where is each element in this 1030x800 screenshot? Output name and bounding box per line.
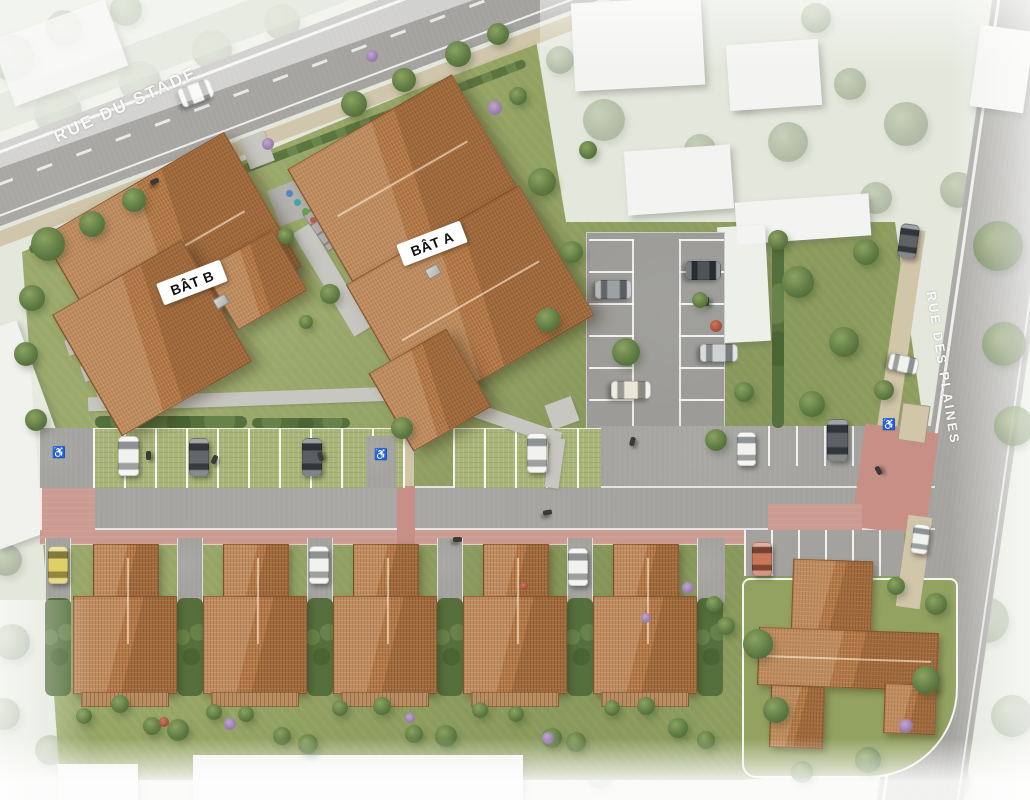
shrub-icon — [508, 706, 524, 722]
house-roof — [353, 544, 419, 600]
flowering-shrub-icon — [542, 732, 554, 744]
tree-icon — [79, 211, 105, 237]
tree-icon — [579, 141, 597, 159]
hedge — [567, 598, 593, 696]
context-building — [970, 25, 1030, 114]
car-icon — [118, 436, 139, 476]
flowering-shrub-icon — [262, 138, 274, 150]
utility-boxes — [897, 402, 930, 444]
driveway — [437, 538, 463, 602]
pedestrian-icon — [146, 451, 151, 460]
tree-icon — [509, 87, 527, 105]
roof-ridge — [517, 558, 519, 644]
accessible-parking-icon: ♿ — [882, 420, 896, 431]
house-roof — [463, 596, 567, 694]
flowering-shrub-icon — [520, 582, 528, 590]
house-roof — [203, 596, 307, 694]
tree-icon — [782, 266, 814, 298]
roof-ridge — [337, 140, 468, 217]
shrub-icon — [373, 697, 391, 715]
tree-icon — [668, 718, 688, 738]
hedge — [772, 230, 784, 428]
road-edge-line — [954, 0, 1030, 800]
tree-icon — [743, 629, 773, 659]
shrub-icon — [206, 704, 222, 720]
tree-icon — [25, 409, 47, 431]
accessible-parking-stall — [366, 436, 396, 488]
tree-icon — [391, 417, 413, 439]
tree-icon — [734, 382, 754, 402]
tree-icon — [528, 168, 556, 196]
shrub-icon — [405, 725, 423, 743]
tree-icon — [994, 406, 1030, 446]
tree-icon — [487, 23, 509, 45]
flowering-shrub-icon — [682, 582, 694, 594]
car-icon — [827, 419, 848, 461]
flowering-shrub-icon — [899, 719, 913, 733]
tree-icon — [278, 228, 294, 244]
driveway — [697, 538, 725, 602]
house-roof — [73, 596, 177, 694]
car-icon — [686, 261, 721, 280]
tree-icon — [706, 596, 722, 612]
tree-icon — [884, 102, 928, 146]
tree-icon — [874, 380, 894, 400]
tree-icon — [14, 342, 38, 366]
tree-icon — [925, 593, 947, 615]
flowering-shrub-icon — [159, 717, 169, 727]
car-icon — [568, 548, 588, 586]
roof-ridge — [257, 558, 259, 644]
car-icon — [189, 438, 209, 476]
tree-icon — [768, 230, 788, 250]
car-icon — [737, 432, 756, 466]
car-icon — [611, 381, 651, 399]
car-icon — [752, 542, 772, 576]
hedge — [45, 598, 71, 696]
playground-equipment-icon — [286, 190, 293, 197]
tree-icon — [546, 46, 574, 74]
shrub-icon — [566, 732, 586, 752]
tree-icon — [122, 188, 146, 212]
tree-icon — [435, 725, 457, 747]
tree-icon — [855, 747, 881, 773]
hedge — [307, 598, 333, 696]
tree-icon — [320, 284, 340, 304]
tree-icon — [717, 617, 735, 635]
pedestrian-icon — [453, 537, 462, 542]
shrub-icon — [604, 700, 620, 716]
tree-icon — [829, 327, 859, 357]
tree-icon — [768, 122, 808, 162]
context-building — [717, 225, 771, 343]
context-building — [571, 0, 705, 91]
tree-icon — [973, 221, 1023, 271]
site-plan-canvas: ♿ ♿ ♿ — [0, 0, 1030, 800]
tree-icon — [801, 3, 831, 33]
tree-icon — [445, 41, 471, 67]
roof-ridge — [767, 655, 931, 663]
flowering-shrub-icon — [641, 613, 651, 623]
playground-equipment-icon — [294, 199, 301, 206]
hedge — [697, 598, 723, 696]
pedestrian-crossing — [397, 486, 415, 545]
flowering-shrub-icon — [405, 713, 415, 723]
tree-icon — [298, 734, 318, 754]
driveway — [177, 538, 203, 602]
roof-ridge — [127, 558, 129, 644]
house-roof — [483, 544, 549, 600]
tree-icon — [167, 719, 189, 741]
car-icon — [595, 280, 632, 299]
hedge — [437, 598, 463, 696]
shrub-icon — [273, 727, 291, 745]
flowering-shrub-icon — [224, 718, 236, 730]
car-icon — [309, 546, 329, 584]
shrub-icon — [238, 706, 254, 722]
tree-icon — [561, 241, 583, 263]
tree-icon — [763, 697, 789, 723]
context-building — [193, 755, 523, 800]
house-roof — [613, 544, 679, 600]
house-roof — [223, 544, 289, 600]
roof-ridge — [387, 558, 389, 644]
flowering-shrub-icon — [488, 101, 502, 115]
context-building — [624, 144, 734, 215]
accessible-parking-icon: ♿ — [52, 448, 66, 459]
shrub-icon — [697, 731, 715, 749]
tree-icon — [299, 315, 313, 329]
tree-icon — [0, 624, 30, 660]
wood-terrace — [211, 692, 299, 707]
tree-icon — [853, 239, 879, 265]
tree-icon — [19, 285, 45, 311]
playground-equipment-icon — [302, 208, 309, 215]
tree-icon — [583, 99, 625, 141]
house-roof — [791, 559, 874, 636]
house-roof — [93, 544, 159, 600]
roof-ridge — [401, 260, 539, 341]
hedge — [177, 598, 203, 696]
tree-icon — [799, 391, 825, 417]
accessible-parking-icon: ♿ — [374, 450, 388, 461]
tree-icon — [536, 308, 560, 332]
grass-paver-parking-row — [93, 428, 405, 488]
shrub-icon — [332, 700, 348, 716]
tree-icon — [705, 429, 727, 451]
flowering-shrub-icon — [366, 50, 378, 62]
playground-equipment-icon — [310, 217, 316, 223]
tree-icon — [31, 227, 65, 261]
tree-icon — [612, 338, 640, 366]
tree-icon — [341, 91, 367, 117]
context-building — [58, 764, 138, 800]
tree-icon — [692, 292, 708, 308]
tree-icon — [834, 68, 866, 100]
context-building — [726, 39, 822, 111]
tree-icon — [0, 698, 20, 730]
tree-icon — [991, 695, 1030, 737]
tree-icon — [110, 0, 142, 26]
shrub-icon — [76, 708, 92, 724]
tree-icon — [392, 68, 416, 92]
roof-ridge — [647, 558, 649, 644]
tree-icon — [887, 577, 905, 595]
house-roof — [333, 596, 437, 694]
hedge — [252, 418, 350, 428]
car-icon — [700, 344, 738, 362]
flowering-shrub-icon — [710, 320, 722, 332]
tree-icon — [0, 544, 22, 576]
shrub-icon — [637, 697, 655, 715]
shrub-icon — [111, 695, 129, 713]
pedestrian-path — [768, 504, 862, 532]
accessible-parking-stall — [40, 428, 93, 488]
tree-icon — [982, 322, 1026, 366]
car-icon — [48, 546, 68, 584]
tree-icon — [791, 761, 813, 783]
car-icon — [527, 433, 547, 473]
house-roof — [593, 596, 697, 694]
tree-icon — [912, 666, 940, 694]
shrub-icon — [472, 702, 488, 718]
